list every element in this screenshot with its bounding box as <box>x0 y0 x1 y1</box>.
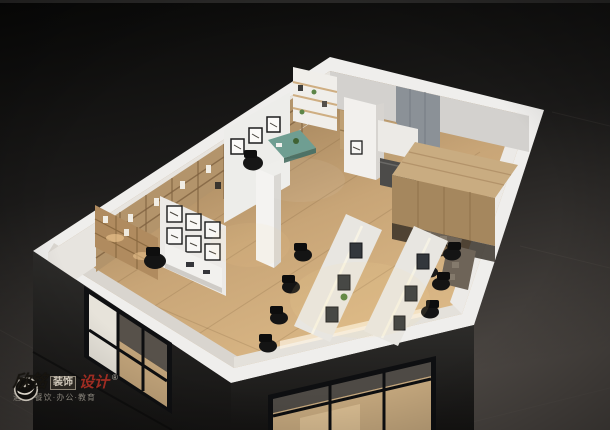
office-render-svg <box>0 0 610 430</box>
vignette <box>0 0 610 430</box>
render-canvas: 欣铭 装饰 设计 ® 酒店·餐饮·办公·教育 <box>0 0 610 430</box>
